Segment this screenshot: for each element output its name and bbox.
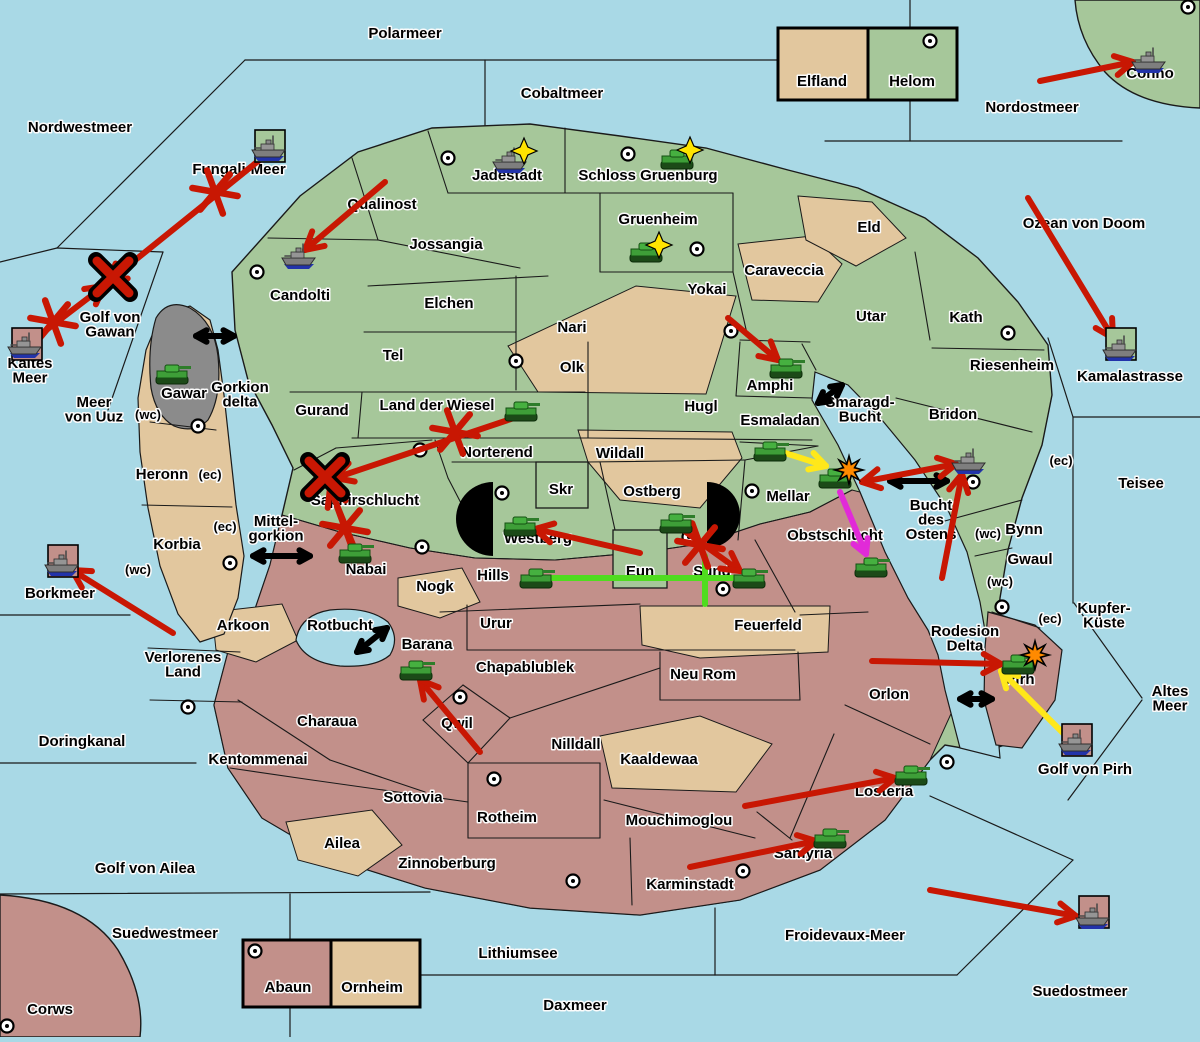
land-label: Feuerfeld [734, 617, 802, 634]
land-label: Sottovia [383, 789, 443, 806]
land-label: Kaaldewaa [620, 751, 698, 768]
sea-label: Teisee [1118, 475, 1164, 492]
army-turret [514, 402, 528, 409]
supply-center-core [695, 247, 699, 251]
sea-label: Rotbucht [307, 617, 373, 634]
land-label: Norterend [461, 444, 533, 461]
supply-center-core [253, 949, 257, 953]
fleet-superstructure [961, 457, 974, 463]
supply-center-core [255, 270, 259, 274]
land-label: Yokai [688, 281, 727, 298]
army-turret [763, 442, 777, 449]
fleet-icon[interactable] [952, 463, 985, 470]
land-label: Eld [857, 219, 880, 236]
supply-center-core [741, 869, 745, 873]
sea-label: Kupfer-Küste [1077, 600, 1130, 632]
land-label: Nabai [346, 561, 387, 578]
land-label: Olk [560, 359, 585, 376]
supply-center-core [5, 1024, 9, 1028]
land-label: Caraveccia [744, 262, 824, 279]
supply-center-core [196, 424, 200, 428]
land-label: Karminstadt [646, 876, 734, 893]
supply-center-core [750, 489, 754, 493]
land-label: Bridon [929, 406, 977, 423]
fleet-superstructure [17, 341, 30, 347]
supply-center-core [446, 156, 450, 160]
army-barrel [682, 515, 695, 518]
army-barrel [877, 559, 890, 562]
sea-label: Polarmeer [368, 25, 442, 42]
sea-label: Kamalastrasse [1077, 368, 1183, 385]
land-label: Wildall [596, 445, 644, 462]
fleet-bridge [1090, 908, 1095, 912]
sea-label: Golf vonGawan [80, 309, 141, 341]
fleet-superstructure [261, 144, 274, 150]
coast-label: (ec) [1049, 453, 1072, 468]
fleet-bridge [266, 140, 271, 144]
land-label: Gawar [161, 385, 207, 402]
supply-center-core [1006, 331, 1010, 335]
supply-center-core [514, 359, 518, 363]
fleet-superstructure [1112, 344, 1125, 350]
sea-label: AltesMeer [1152, 683, 1189, 715]
land-label: Rotheim [477, 809, 537, 826]
fleet-superstructure [1068, 738, 1081, 744]
sea-label: Froidevaux-Meer [785, 927, 905, 944]
fleet-bridge [1146, 52, 1151, 56]
fleet-icon[interactable] [1103, 350, 1136, 357]
land-label: Nari [557, 319, 586, 336]
land-label: Arkoon [217, 617, 270, 634]
coast-label: (wc) [135, 407, 161, 422]
land-label: Gruenheim [618, 211, 697, 228]
land-label: Kath [949, 309, 982, 326]
supply-center-core [928, 39, 932, 43]
coast-label: (wc) [987, 574, 1013, 589]
arrow-head [720, 569, 740, 571]
land-label: Schloss Gruenburg [578, 167, 717, 184]
coast-label: (wc) [975, 526, 1001, 541]
land-label: Abaun [265, 979, 312, 996]
land-label: Hugl [684, 398, 717, 415]
supply-center-core [458, 695, 462, 699]
sea-label: Suedwestmeer [112, 925, 218, 942]
land-label: Chapablublek [476, 659, 575, 676]
fleet-icon[interactable] [8, 347, 41, 354]
supply-center-core [492, 777, 496, 781]
land-label: Candolti [270, 287, 330, 304]
fleet-superstructure [1085, 912, 1098, 918]
army-barrel [755, 570, 768, 573]
fleet-icon[interactable] [1076, 918, 1109, 925]
land-label: Kentommenai [208, 751, 307, 768]
army-barrel [361, 545, 374, 548]
fleet-superstructure [54, 559, 67, 565]
land-label: Amphi [747, 377, 794, 394]
army-turret [348, 544, 362, 551]
supply-center-core [1186, 5, 1190, 9]
arrow-head [382, 628, 387, 639]
sea-label: Lithiumsee [478, 945, 557, 962]
land-label: Neu Rom [670, 666, 736, 683]
sea-label: Suedostmeer [1032, 983, 1127, 1000]
sea-label: Doringkanal [39, 733, 126, 750]
army-barrel [422, 662, 435, 665]
fleet-superstructure [1141, 56, 1154, 62]
game-map: PolarmeerCobaltmeerNordwestmeerNordostme… [0, 0, 1200, 1037]
army-turret [864, 558, 878, 565]
fleet-bridge [22, 337, 27, 341]
sea-label: Daxmeer [543, 997, 607, 1014]
army-barrel [836, 830, 849, 833]
land-label: Riesenheim [970, 357, 1054, 374]
land-label: Hills [477, 567, 509, 584]
supply-center-core [420, 545, 424, 549]
sea-label: Nordostmeer [985, 99, 1079, 116]
army-barrel [792, 360, 805, 363]
land-label: Gwaul [1007, 551, 1052, 568]
sea-label: Cobaltmeer [521, 85, 604, 102]
land-label: Mellar [766, 488, 810, 505]
coast-label: (ec) [198, 467, 221, 482]
coast-label: (ec) [1038, 611, 1061, 626]
army-barrel [776, 443, 789, 446]
land-label: Ostberg [623, 483, 681, 500]
supply-center-core [626, 152, 630, 156]
fleet-superstructure [291, 252, 304, 258]
fleet-icon[interactable] [45, 565, 78, 572]
army-turret [513, 517, 527, 524]
supply-center-core [500, 491, 504, 495]
army-barrel [542, 570, 555, 573]
army-turret [529, 569, 543, 576]
land-label: Barana [402, 636, 454, 653]
land-label: Esmaladan [740, 412, 819, 429]
fleet-icon[interactable] [1132, 62, 1165, 69]
land-label: Charaua [297, 713, 358, 730]
explosion-burst [835, 456, 863, 484]
land-label: Jossangia [409, 236, 483, 253]
army-turret [165, 365, 179, 372]
move-arrow [872, 661, 1001, 664]
legend-box [331, 940, 420, 1007]
arrow-head [357, 641, 362, 652]
fleet-bridge [59, 555, 64, 559]
land-label: Ornheim [341, 979, 403, 996]
fleet-icon[interactable] [252, 150, 285, 157]
land-label: Bynn [1005, 521, 1043, 538]
arrow-head [808, 466, 826, 469]
fleet-bridge [507, 152, 512, 156]
supply-center-core [228, 561, 232, 565]
fleet-icon[interactable] [282, 258, 315, 265]
supply-center-core [721, 587, 725, 591]
fleet-bridge [966, 453, 971, 457]
supply-center-core [186, 705, 190, 709]
sea-label: Golf von Ailea [95, 860, 196, 877]
fleet-icon[interactable] [493, 162, 526, 169]
fleet-bridge [296, 248, 301, 252]
army-barrel [527, 403, 540, 406]
sea-label: Nordwestmeer [28, 119, 132, 136]
land-label: Skr [549, 481, 573, 498]
land-label: Corws [27, 1001, 73, 1018]
army-barrel [526, 518, 539, 521]
explosion-burst [1021, 641, 1049, 669]
army-turret [779, 359, 793, 366]
supply-center-core [945, 760, 949, 764]
fleet-bridge [1073, 734, 1078, 738]
supply-center-core [571, 879, 575, 883]
supply-center-core [971, 480, 975, 484]
land-label: Nilldall [551, 736, 600, 753]
fleet-icon[interactable] [1059, 744, 1092, 751]
land-label: Korbia [153, 536, 201, 553]
land-label: Orlon [869, 686, 909, 703]
army-turret [409, 661, 423, 668]
fleet-bridge [1117, 340, 1122, 344]
army-turret [742, 569, 756, 576]
land-label: Ailea [324, 835, 361, 852]
land-label: Heronn [136, 466, 189, 483]
army-barrel [917, 767, 930, 770]
land-label: Mouchimoglou [626, 812, 733, 829]
land-label: Zinnoberburg [398, 855, 496, 872]
supply-center-core [1000, 605, 1004, 609]
supply-center-core [729, 329, 733, 333]
army-turret [669, 514, 683, 521]
land-label: Elchen [424, 295, 473, 312]
land-label: Gurand [295, 402, 348, 419]
army-turret [904, 766, 918, 773]
sea-label: Golf von Pirh [1038, 761, 1132, 778]
land-label: Urur [480, 615, 512, 632]
land-label: Nogk [416, 578, 454, 595]
land-label: Utar [856, 308, 886, 325]
land-label: Land der Wiesel [380, 397, 495, 414]
army-barrel [178, 366, 191, 369]
land-label: Elfland [797, 73, 847, 90]
coast-label: (ec) [213, 519, 236, 534]
fleet-superstructure [502, 156, 515, 162]
arrow-head [758, 356, 778, 360]
land-label: Helom [889, 73, 935, 90]
coast-label: (wc) [125, 562, 151, 577]
army-turret [823, 829, 837, 836]
map-stage: PolarmeerCobaltmeerNordwestmeerNordostme… [0, 0, 1200, 1037]
land-label: Tel [383, 347, 404, 364]
sea-label: Mittel-gorkion [249, 513, 304, 545]
